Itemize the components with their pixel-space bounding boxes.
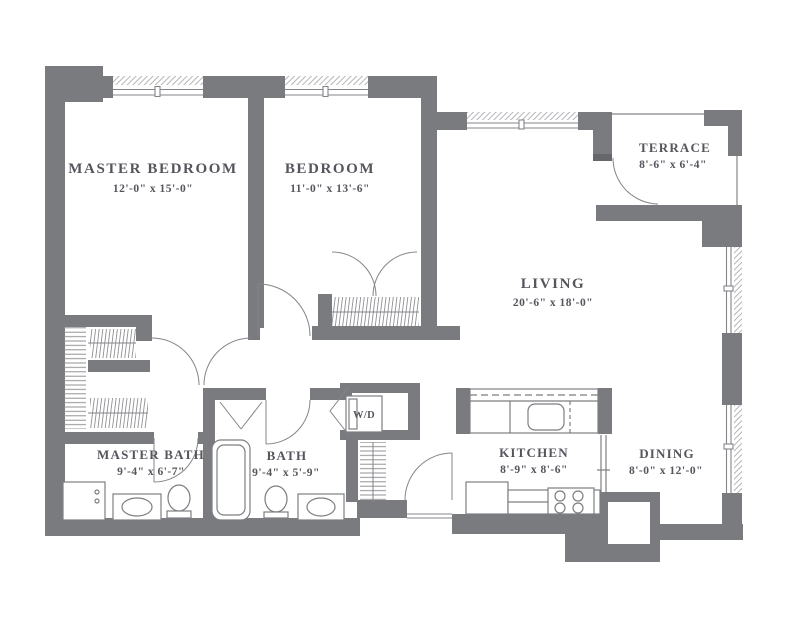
dining-window-right bbox=[722, 405, 742, 493]
wall-living-top-left bbox=[421, 112, 467, 130]
wall-kitchen-counter-pier-right bbox=[598, 388, 612, 434]
floor-plan: MASTER BEDROOM 12'-0" x 15'-0" BEDROOM 1… bbox=[0, 0, 800, 633]
utility-shaft bbox=[608, 502, 650, 544]
burner-2 bbox=[573, 491, 583, 501]
wall-terrace-left-pier bbox=[593, 112, 612, 156]
bath-door-arc bbox=[266, 400, 310, 444]
wall-kitchen-counter-pier-left bbox=[456, 388, 470, 434]
floor-plan-page: MASTER BEDROOM 12'-0" x 15'-0" BEDROOM 1… bbox=[0, 0, 800, 633]
wall-top-a bbox=[63, 76, 113, 98]
wall-bottom-left bbox=[45, 518, 360, 536]
room-label-terrace: TERRACE bbox=[639, 140, 711, 155]
shower-knob-2 bbox=[95, 499, 99, 503]
room-label-dining: DINING bbox=[639, 446, 695, 461]
burner-3 bbox=[555, 503, 565, 513]
living-window-right bbox=[722, 247, 742, 333]
wall-top-b bbox=[203, 76, 285, 98]
bathtub-inner bbox=[217, 445, 245, 515]
room-dims-living: 20'-6" x 18'-0" bbox=[513, 297, 593, 309]
wall-terrace-right-pier bbox=[728, 110, 742, 156]
room-dims-master-bath: 9'-4" x 6'-7" bbox=[117, 466, 185, 478]
wall-left-exterior bbox=[45, 66, 65, 536]
wall-right-corner-top bbox=[702, 205, 742, 247]
room-dims-master-bedroom: 12'-0" x 15'-0" bbox=[113, 183, 193, 195]
master-suite-door-arc bbox=[152, 338, 199, 385]
wall-bedroom-bottom bbox=[312, 326, 460, 340]
living-window-top bbox=[467, 112, 578, 130]
terrace-door-sill bbox=[593, 154, 612, 161]
wall-right-pier bbox=[722, 333, 742, 405]
room-label-bath: BATH bbox=[267, 448, 308, 463]
room-label-kitchen: KITCHEN bbox=[499, 445, 569, 460]
bath-toilet-bowl bbox=[265, 486, 287, 512]
bath-toilet-tank bbox=[264, 512, 288, 518]
closet-double-door-right-arc bbox=[373, 252, 417, 296]
hall-closet-bifold-right bbox=[241, 402, 262, 429]
shower-knob-1 bbox=[95, 490, 99, 494]
burner-1 bbox=[555, 491, 565, 501]
room-label-bedroom: BEDROOM bbox=[285, 161, 375, 177]
bath-sink bbox=[307, 498, 335, 516]
bedroom-window bbox=[285, 76, 368, 98]
master-bedroom-door-arc bbox=[204, 338, 251, 385]
bedroom-door-arc bbox=[258, 284, 310, 336]
refrigerator bbox=[466, 482, 508, 514]
master-closet-shelves-hatch bbox=[64, 327, 86, 429]
wall-closet-left-pier bbox=[318, 294, 332, 328]
room-dims-terrace: 8'-6" x 6'-4" bbox=[639, 159, 707, 171]
wall-entry bbox=[357, 500, 407, 518]
closet-double-door-left-arc bbox=[332, 252, 376, 296]
wall-dining-bottom bbox=[653, 524, 743, 540]
wall-between-bedrooms bbox=[248, 98, 264, 328]
room-dims-dining: 8'-0" x 12'-0" bbox=[629, 465, 703, 477]
room-label-master-bedroom: MASTER BEDROOM bbox=[68, 161, 238, 177]
room-label-master-bath: MASTER BATH bbox=[97, 447, 205, 462]
room-dims-bath: 9'-4" x 5'-9" bbox=[252, 467, 320, 479]
wall-master-closet-pier bbox=[136, 315, 152, 341]
kitchen-sink bbox=[528, 404, 564, 430]
washer-dryer-label: W/D bbox=[353, 410, 375, 421]
master-bath-toilet-tank bbox=[167, 511, 191, 518]
master-bedroom-window bbox=[113, 76, 203, 98]
wall-kitchen-bottom bbox=[452, 514, 572, 534]
burner-4 bbox=[573, 503, 583, 513]
hall-closet-bifold-left bbox=[220, 402, 241, 429]
wall-master-closet-divider bbox=[88, 360, 150, 372]
master-bath-sink bbox=[122, 498, 152, 516]
master-bath-toilet-bowl bbox=[168, 485, 190, 511]
room-dims-bedroom: 11'-0" x 13'-6" bbox=[290, 183, 370, 195]
wall-master-bath-top-left bbox=[62, 432, 154, 444]
room-label-living: LIVING bbox=[521, 276, 586, 292]
entry-door-arc bbox=[405, 453, 452, 500]
room-dims-kitchen: 8'-9" x 8'-6" bbox=[500, 464, 568, 476]
